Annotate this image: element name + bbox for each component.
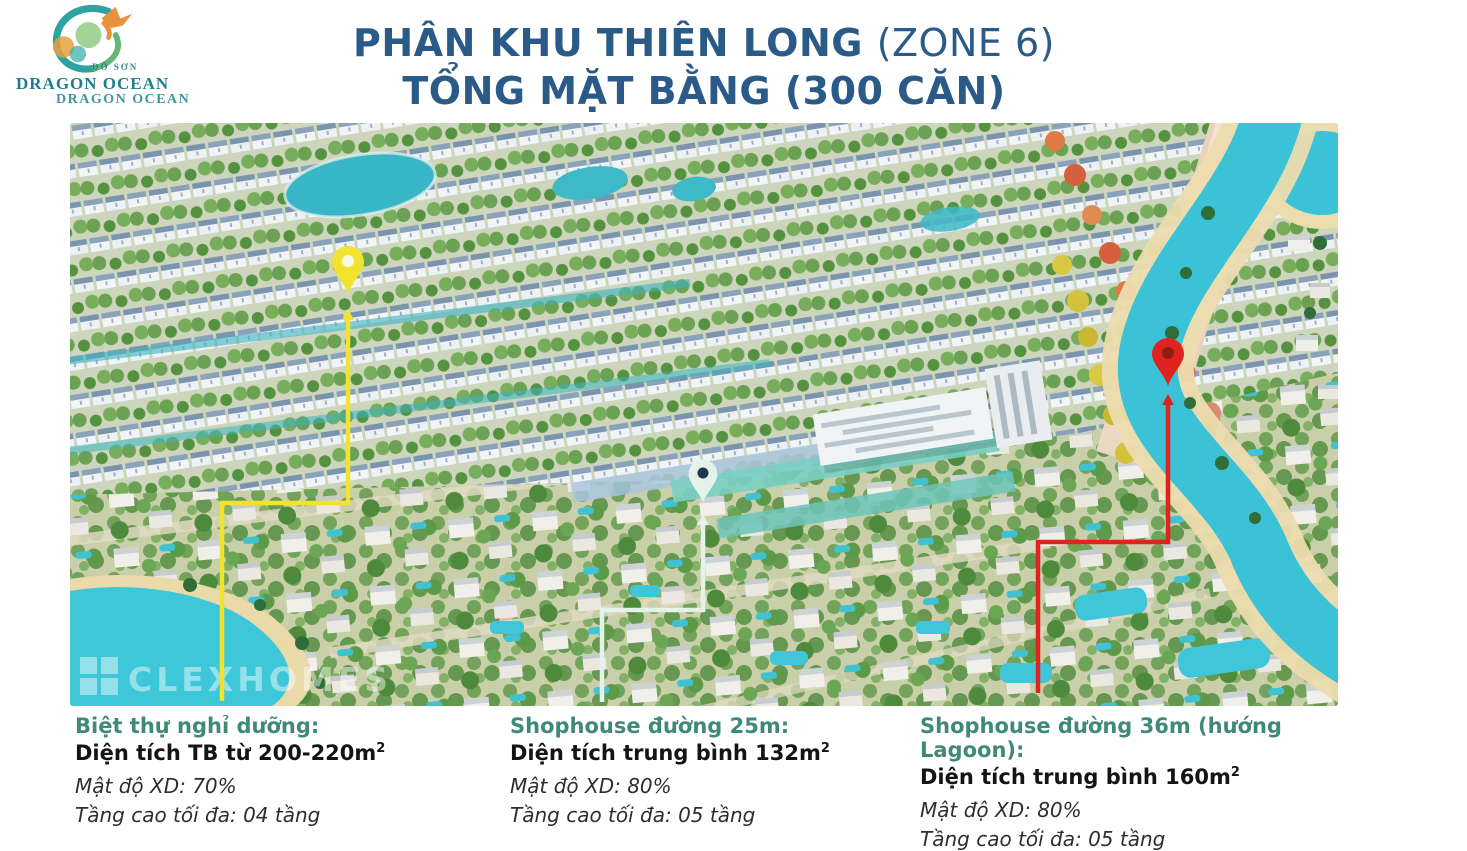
legend-villa-area-text: Diện tích TB từ 200-220m [75, 741, 376, 765]
legend-shophouse-36m: Shophouse đường 36m (hướng Lagoon): Diện… [920, 714, 1390, 851]
title-line-2: TỔNG MẶT BẰNG (300 CĂN) [70, 68, 1338, 116]
watermark-text: CLEXHOMES [128, 660, 392, 699]
page-title: PHÂN KHU THIÊN LONG (ZONE 6) TỔNG MẶT BẰ… [70, 20, 1338, 116]
title-line-1: PHÂN KHU THIÊN LONG (ZONE 6) [70, 20, 1338, 68]
legend-shophouse-36m-area: Diện tích trung bình 160m2 [920, 765, 1390, 789]
legend-villa-floors: Tầng cao tối đa: 04 tầng [75, 803, 505, 827]
legend-shophouse-36m-area-text: Diện tích trung bình 160m [920, 765, 1231, 789]
masterplan-aerial-image: CLEXHOMES [70, 123, 1338, 706]
legend-shophouse-25m-density: Mật độ XD: 80% [510, 774, 940, 798]
title-zone-name: PHÂN KHU THIÊN LONG [353, 21, 863, 65]
slide-page: ĐỒ SƠN DRAGON OCEAN DRAGON OCEAN PHÂN KH… [0, 0, 1467, 818]
legend-villa-density: Mật độ XD: 70% [75, 774, 505, 798]
legend-shophouse-36m-density: Mật độ XD: 80% [920, 798, 1390, 822]
legend-villa: Biệt thự nghỉ dưỡng: Diện tích TB từ 200… [75, 714, 505, 827]
legend-shophouse-25m-heading: Shophouse đường 25m: [510, 714, 940, 738]
legend-shophouse-25m-area: Diện tích trung bình 132m2 [510, 741, 940, 765]
legend-shophouse-36m-heading: Shophouse đường 36m (hướng Lagoon): [920, 714, 1390, 762]
legend-shophouse-25m-area-sup: 2 [821, 741, 830, 756]
legend-villa-area-sup: 2 [376, 741, 385, 756]
legend-shophouse-36m-floors: Tầng cao tối đa: 05 tầng [920, 827, 1390, 851]
title-zone-number: (ZONE 6) [877, 21, 1055, 65]
legend-shophouse-25m-area-text: Diện tích trung bình 132m [510, 741, 821, 765]
legend-villa-area: Diện tích TB từ 200-220m2 [75, 741, 505, 765]
legend-shophouse-36m-area-sup: 2 [1231, 765, 1240, 780]
legend-shophouse-25m-floors: Tầng cao tối đa: 05 tầng [510, 803, 940, 827]
legend-villa-heading: Biệt thự nghỉ dưỡng: [75, 714, 505, 738]
legend-shophouse-25m: Shophouse đường 25m: Diện tích trung bìn… [510, 714, 940, 827]
